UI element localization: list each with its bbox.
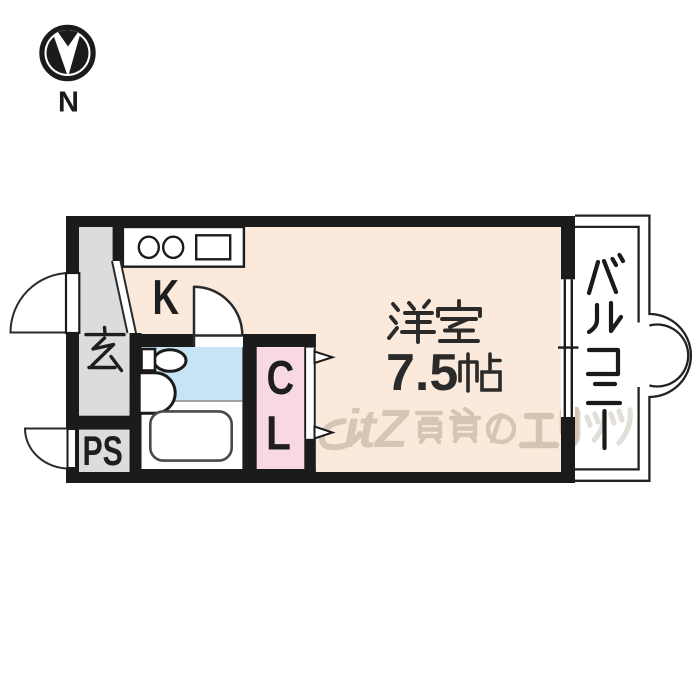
svg-text:itZ: itZ [344,399,410,459]
svg-text:7.5: 7.5 [386,344,458,402]
svg-text:K: K [153,271,180,325]
svg-text:PS: PS [83,427,123,474]
svg-text:L: L [266,407,291,460]
svg-text:C: C [267,352,295,405]
svg-text:N: N [58,87,79,119]
